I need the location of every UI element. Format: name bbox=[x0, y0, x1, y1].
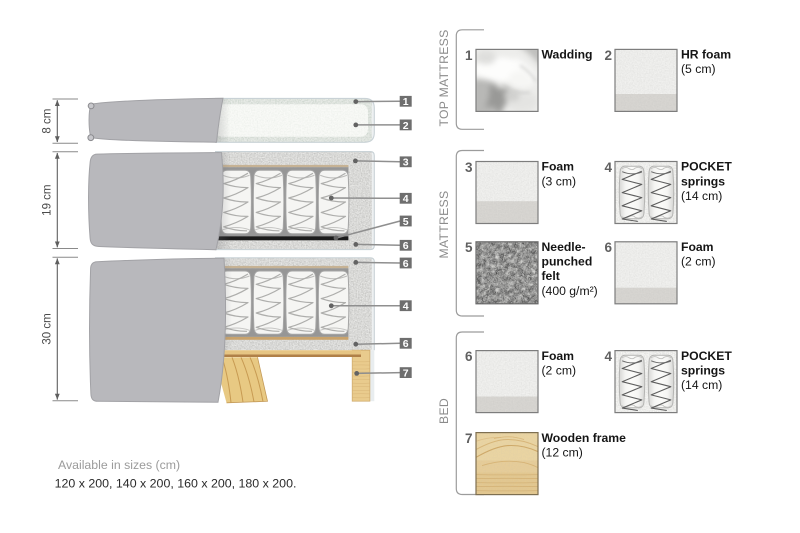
svg-text:6: 6 bbox=[403, 258, 409, 270]
svg-text:felt: felt bbox=[542, 269, 560, 283]
svg-text:3: 3 bbox=[465, 160, 473, 175]
svg-text:springs: springs bbox=[681, 363, 725, 377]
svg-text:POCKET: POCKET bbox=[681, 160, 732, 174]
svg-text:4: 4 bbox=[403, 301, 409, 313]
svg-text:(14 cm): (14 cm) bbox=[681, 378, 722, 392]
svg-text:1: 1 bbox=[465, 48, 473, 63]
svg-text:(14 cm): (14 cm) bbox=[681, 189, 722, 203]
svg-text:4: 4 bbox=[604, 349, 612, 364]
svg-text:6: 6 bbox=[604, 240, 612, 255]
svg-text:Needle-: Needle- bbox=[542, 240, 586, 254]
svg-text:4: 4 bbox=[604, 160, 612, 175]
svg-text:(2 cm): (2 cm) bbox=[542, 363, 577, 377]
svg-text:Foam: Foam bbox=[681, 240, 714, 254]
svg-text:punched: punched bbox=[542, 255, 593, 269]
svg-text:springs: springs bbox=[681, 174, 725, 188]
svg-text:1: 1 bbox=[403, 96, 409, 108]
svg-text:19 cm: 19 cm bbox=[42, 184, 54, 215]
svg-text:TOP MATTRESS: TOP MATTRESS bbox=[437, 29, 451, 126]
svg-text:(3 cm): (3 cm) bbox=[542, 174, 577, 188]
svg-text:HR foam: HR foam bbox=[681, 48, 731, 62]
svg-text:BED: BED bbox=[437, 398, 451, 424]
svg-text:(12 cm): (12 cm) bbox=[542, 445, 583, 459]
svg-text:7: 7 bbox=[465, 431, 473, 446]
svg-text:7: 7 bbox=[403, 368, 409, 380]
svg-text:(5 cm): (5 cm) bbox=[681, 62, 716, 76]
svg-text:MATTRESS: MATTRESS bbox=[437, 191, 451, 259]
svg-text:2: 2 bbox=[403, 120, 409, 132]
svg-text:POCKET: POCKET bbox=[681, 349, 732, 363]
svg-text:8 cm: 8 cm bbox=[42, 109, 54, 134]
svg-text:Wooden frame: Wooden frame bbox=[542, 431, 627, 445]
svg-text:6: 6 bbox=[403, 338, 409, 350]
svg-text:(400 g/m²): (400 g/m²) bbox=[542, 284, 598, 298]
svg-text:5: 5 bbox=[403, 216, 409, 228]
svg-text:6: 6 bbox=[403, 240, 409, 252]
svg-text:6: 6 bbox=[465, 349, 473, 364]
svg-text:3: 3 bbox=[403, 157, 409, 169]
svg-text:2: 2 bbox=[604, 48, 612, 63]
svg-text:Wadding: Wadding bbox=[542, 48, 593, 62]
svg-text:30 cm: 30 cm bbox=[42, 313, 54, 344]
svg-text:(2 cm): (2 cm) bbox=[681, 255, 716, 269]
svg-text:5: 5 bbox=[465, 240, 473, 255]
svg-text:Foam: Foam bbox=[542, 349, 575, 363]
svg-text:120 x 200, 140 x 200, 160 x 20: 120 x 200, 140 x 200, 160 x 200, 180 x 2… bbox=[55, 476, 297, 490]
svg-text:4: 4 bbox=[403, 193, 409, 205]
svg-text:Available in sizes (cm): Available in sizes (cm) bbox=[58, 458, 180, 472]
svg-text:Foam: Foam bbox=[542, 160, 575, 174]
